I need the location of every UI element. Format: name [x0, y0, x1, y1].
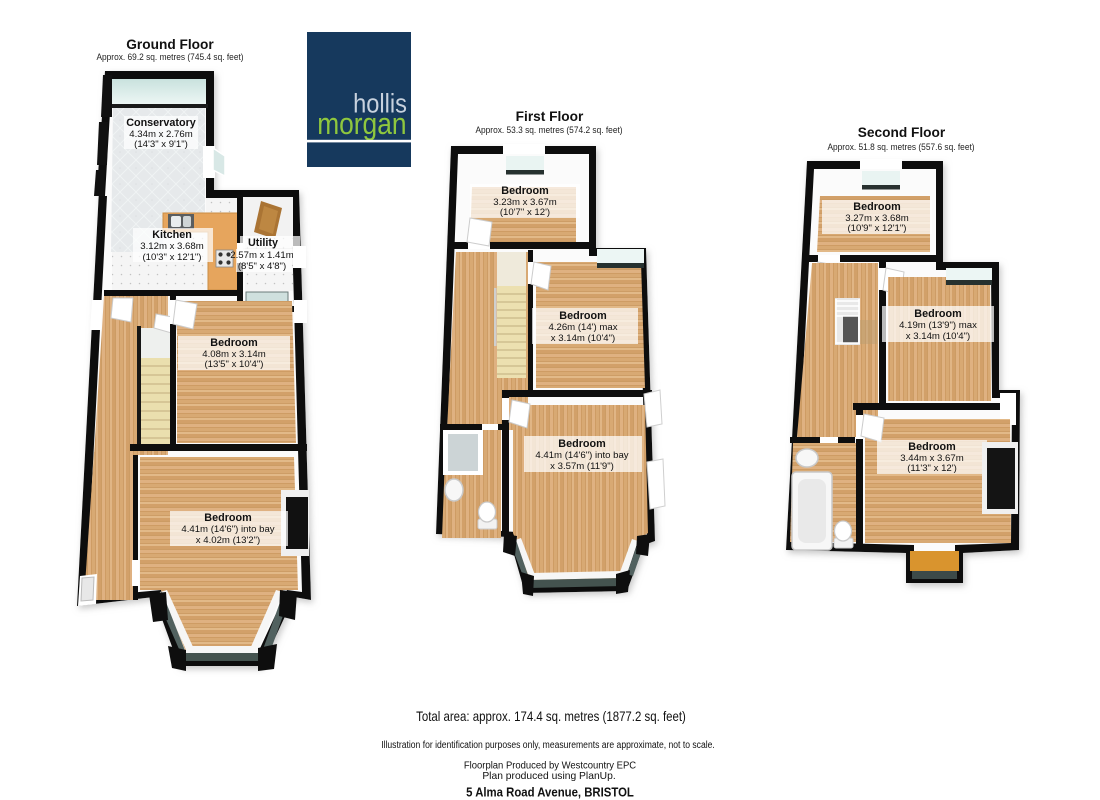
svg-text:2.57m x 1.41m: 2.57m x 1.41m [230, 250, 293, 261]
svg-text:x 3.57m (11'9"): x 3.57m (11'9") [550, 461, 614, 472]
svg-text:Ground Floor: Ground Floor [126, 37, 214, 52]
svg-text:(10'7" x 12'): (10'7" x 12') [500, 207, 550, 218]
svg-text:4.26m (14') max: 4.26m (14') max [548, 322, 617, 333]
svg-text:Bedroom: Bedroom [853, 201, 900, 213]
svg-text:x 4.02m (13'2"): x 4.02m (13'2") [196, 535, 260, 546]
svg-text:4.41m (14'6") into bay: 4.41m (14'6") into bay [181, 524, 274, 535]
svg-text:Utility: Utility [248, 237, 278, 249]
svg-text:(10'3" x 12'1"): (10'3" x 12'1") [142, 252, 201, 263]
svg-text:Bedroom: Bedroom [558, 438, 605, 450]
svg-text:x 3.14m (10'4"): x 3.14m (10'4") [551, 333, 615, 344]
svg-text:Approx. 53.3 sq. metres (574.: Approx. 53.3 sq. metres (574.2 sq. feet) [475, 125, 622, 136]
svg-text:Illustration for identificatio: Illustration for identification purposes… [381, 739, 715, 751]
svg-text:Bedroom: Bedroom [559, 310, 606, 322]
svg-text:3.12m x 3.68m: 3.12m x 3.68m [140, 241, 203, 252]
svg-text:Bedroom: Bedroom [210, 337, 257, 349]
svg-text:Bedroom: Bedroom [908, 441, 955, 453]
svg-text:Total area: approx. 174.4 sq.: Total area: approx. 174.4 sq. metres (18… [416, 709, 686, 724]
svg-text:(14'3" x 9'1"): (14'3" x 9'1") [134, 139, 188, 150]
svg-text:4.19m (13'9") max: 4.19m (13'9") max [899, 320, 977, 331]
svg-text:Plan produced using PlanUp.: Plan produced using PlanUp. [482, 771, 615, 782]
svg-text:First Floor: First Floor [516, 109, 584, 124]
svg-text:(13'5" x 10'4"): (13'5" x 10'4") [204, 359, 263, 370]
svg-text:Conservatory: Conservatory [126, 117, 196, 129]
svg-text:Approx. 51.8 sq. metres (557.: Approx. 51.8 sq. metres (557.6 sq. feet) [827, 142, 974, 153]
svg-text:4.41m (14'6") into bay: 4.41m (14'6") into bay [535, 450, 628, 461]
svg-text:Bedroom: Bedroom [914, 308, 961, 320]
svg-text:Approx. 69.2 sq. metres (745.: Approx. 69.2 sq. metres (745.4 sq. feet) [96, 52, 243, 63]
svg-text:Bedroom: Bedroom [501, 185, 548, 197]
svg-text:5 Alma Road Avenue, BRISTOL: 5 Alma Road Avenue, BRISTOL [466, 785, 634, 800]
svg-text:x 3.14m (10'4"): x 3.14m (10'4") [906, 331, 970, 342]
svg-text:(11'3" x 12'): (11'3" x 12') [907, 463, 957, 474]
svg-text:Bedroom: Bedroom [204, 512, 251, 524]
svg-text:Floorplan Produced by Westcoun: Floorplan Produced by Westcountry EPC [464, 760, 636, 771]
svg-text:(8'5" x 4'8"): (8'5" x 4'8") [238, 261, 286, 272]
svg-text:Second Floor: Second Floor [858, 125, 946, 140]
svg-text:morgan: morgan [317, 107, 406, 141]
svg-text:Kitchen: Kitchen [152, 229, 192, 241]
svg-text:(10'9" x 12'1"): (10'9" x 12'1") [847, 223, 906, 234]
